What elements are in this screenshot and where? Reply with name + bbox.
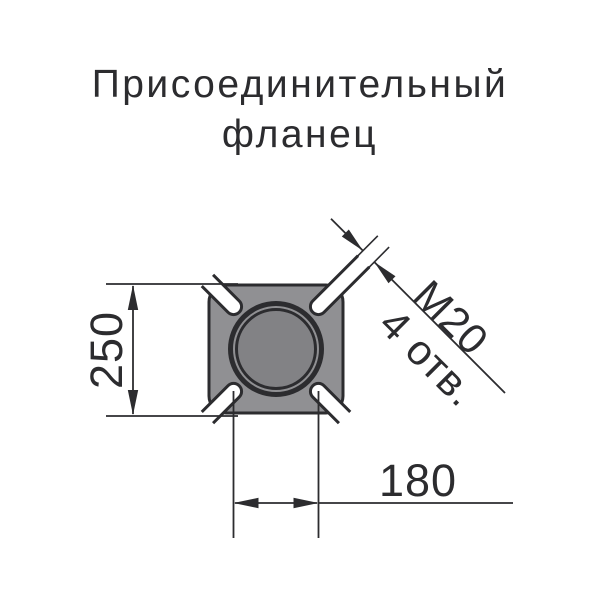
m20-slot-width-extension-line-1	[354, 236, 378, 260]
drawing-page: Присоединительный фланец 250	[0, 0, 600, 600]
title-line-2: фланец	[222, 113, 378, 156]
title-line-1: Присоединительный	[92, 63, 509, 106]
dim-m20-group: M20 4 отв.	[331, 219, 505, 416]
dim-180-arrow-left-icon	[234, 498, 259, 508]
flange-drawing: Присоединительный фланец 250	[0, 0, 600, 600]
dim-250-arrow-down-icon	[128, 390, 138, 415]
dim-250-label: 250	[81, 311, 132, 389]
dim-250-arrow-up-icon	[128, 285, 138, 310]
flange-body-group	[202, 256, 370, 424]
bore-hole	[237, 310, 316, 389]
m20-slot-width-extension-line-2	[365, 247, 389, 271]
drawing-title: Присоединительный фланец	[92, 63, 509, 156]
dim-180-arrow-right-icon	[294, 498, 319, 508]
dim-180-label: 180	[379, 455, 457, 506]
